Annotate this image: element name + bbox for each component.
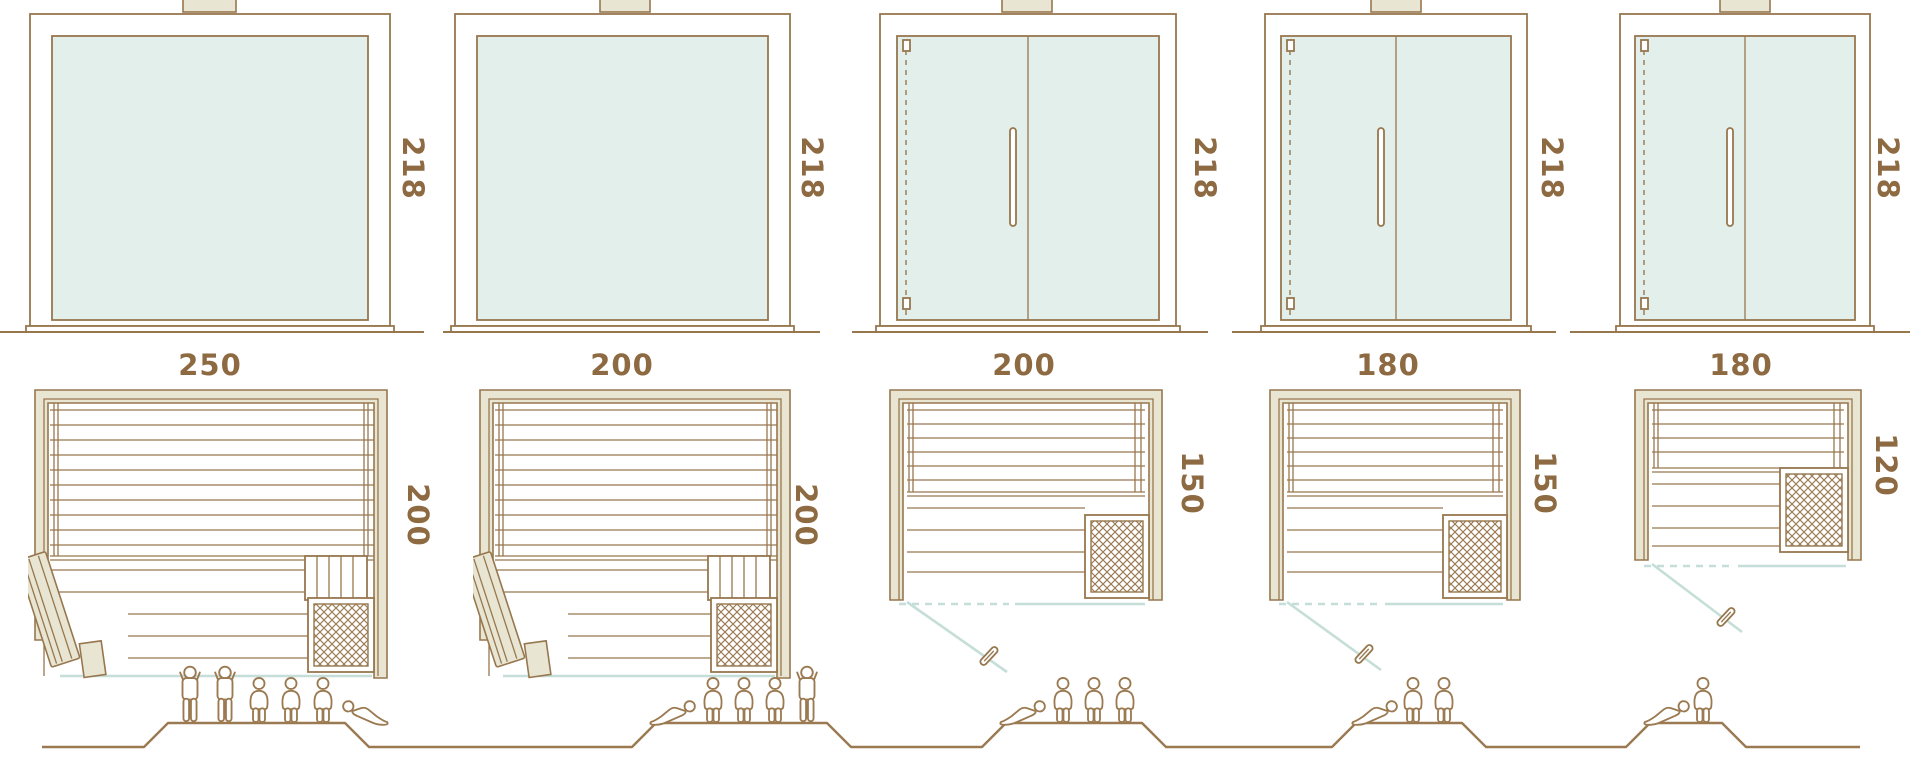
person-sitting-icon <box>1435 678 1452 722</box>
ground-line <box>852 331 1208 333</box>
ground-line <box>443 331 820 333</box>
front-bench-slats <box>1287 508 1443 572</box>
back-bench-slats <box>907 403 1145 496</box>
person-sitting-icon <box>766 678 783 722</box>
floor-plan-drawing-1 <box>28 384 400 684</box>
person-sitting-icon <box>250 678 267 722</box>
roof-vent-icon <box>1371 0 1421 12</box>
height-dimension-label: 218 <box>795 123 829 213</box>
heater-icon <box>1085 515 1149 598</box>
door-handle-icon <box>1378 128 1384 226</box>
depth-dimension-label: 200 <box>401 470 435 560</box>
roof-vent-icon <box>1002 0 1052 12</box>
depth-dimension-label: 120 <box>1869 420 1903 510</box>
bench-end-slats <box>305 556 367 600</box>
sauna-size-diagram: 218 250 <box>0 0 1920 770</box>
back-bench-slats <box>495 403 777 560</box>
person-standing-icon <box>180 667 200 721</box>
height-dimension-label: 218 <box>396 123 430 213</box>
glass-front <box>52 36 368 320</box>
hinge-pivot-top <box>1641 40 1648 51</box>
width-dimension-label: 200 <box>562 348 682 382</box>
roof-vent-icon <box>183 0 236 12</box>
back-bench-slats <box>1652 403 1844 472</box>
person-sitting-icon <box>1085 678 1102 722</box>
capacity-ground-drawing <box>0 655 1920 770</box>
person-sitting-icon <box>282 678 299 722</box>
front-elevation-drawing-1 <box>22 0 402 342</box>
front-elevation-drawing-2 <box>449 0 797 342</box>
hinge-pivot-bottom <box>1287 298 1294 309</box>
back-bench-slats <box>1287 403 1503 496</box>
hinge-pivot-top <box>1287 40 1294 51</box>
door-handle-icon <box>1727 128 1733 226</box>
heater-icon <box>1443 515 1507 598</box>
person-sitting-icon <box>1404 678 1421 722</box>
open-door-icon <box>473 551 525 667</box>
width-dimension-label: 180 <box>1681 348 1801 382</box>
ground-line <box>0 331 424 333</box>
floor-plan-drawing-2 <box>473 384 803 684</box>
floor-plan-drawing-4 <box>1263 384 1563 684</box>
ground-profile-line <box>42 723 1860 747</box>
width-dimension-label: 250 <box>150 348 270 382</box>
front-elevation-drawing-3 <box>874 0 1184 342</box>
door-handle-icon <box>1010 128 1016 226</box>
bench-end-slats <box>708 556 770 600</box>
person-standing-icon <box>215 667 235 721</box>
back-bench-slats <box>50 403 374 560</box>
heater-icon <box>1780 468 1848 552</box>
front-bench-slats <box>1652 484 1780 546</box>
floor-plan-drawing-3 <box>883 384 1183 684</box>
front-elevation-drawing-4 <box>1259 0 1535 342</box>
height-dimension-label: 218 <box>1535 123 1569 213</box>
glass-front <box>477 36 768 320</box>
hinge-pivot-top <box>903 40 910 51</box>
person-sitting-icon <box>704 678 721 722</box>
person-sitting-icon <box>1116 678 1133 722</box>
person-sitting-icon <box>735 678 752 722</box>
depth-dimension-label: 150 <box>1528 438 1562 528</box>
height-dimension-label: 218 <box>1188 123 1222 213</box>
person-standing-icon <box>797 667 817 721</box>
depth-dimension-label: 150 <box>1175 438 1209 528</box>
person-sitting-icon <box>314 678 331 722</box>
height-dimension-label: 218 <box>1871 123 1905 213</box>
roof-vent-icon <box>600 0 650 12</box>
front-bench-slats <box>907 508 1085 572</box>
person-sitting-icon <box>1054 678 1071 722</box>
open-door-icon <box>28 551 80 667</box>
width-dimension-label: 200 <box>964 348 1084 382</box>
ground-line <box>1232 331 1556 333</box>
front-elevation-drawing-5 <box>1614 0 1880 342</box>
depth-dimension-label: 200 <box>789 470 823 560</box>
hinge-pivot-bottom <box>1641 298 1648 309</box>
ground-line <box>1570 331 1910 333</box>
width-dimension-label: 180 <box>1328 348 1448 382</box>
hinge-pivot-bottom <box>903 298 910 309</box>
person-sitting-icon <box>1694 678 1711 722</box>
roof-vent-icon <box>1720 0 1770 12</box>
person-lying-icon <box>341 700 390 725</box>
open-glass-door-swing <box>1652 564 1742 632</box>
